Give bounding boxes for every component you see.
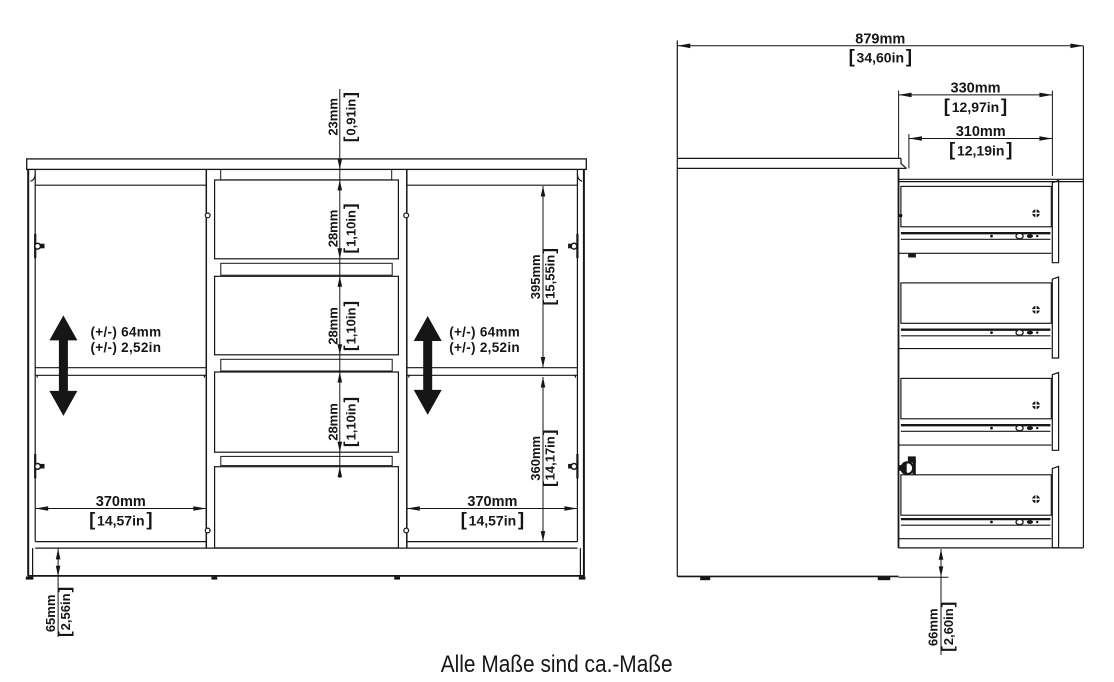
- svg-text:879mm: 879mm: [855, 31, 905, 47]
- svg-text:(+/-) 2,52in: (+/-) 2,52in: [449, 340, 520, 355]
- svg-text:[1,10in]: [1,10in]: [341, 203, 360, 253]
- svg-text:28mm: 28mm: [326, 307, 341, 345]
- svg-text:(+/-) 64mm: (+/-) 64mm: [449, 324, 520, 339]
- svg-text:66mm: 66mm: [925, 609, 940, 647]
- svg-text:[14,57in]: [14,57in]: [89, 508, 152, 529]
- svg-text:[12,19in]: [12,19in]: [949, 138, 1012, 159]
- svg-text:[2,56in]: [2,56in]: [55, 587, 74, 637]
- svg-text:360mm: 360mm: [528, 436, 543, 481]
- svg-text:370mm: 370mm: [467, 494, 517, 510]
- svg-text:(+/-) 2,52in: (+/-) 2,52in: [91, 340, 162, 355]
- svg-text:395mm: 395mm: [528, 254, 543, 299]
- svg-text:Alle Maße sind ca.-Maße: Alle Maße sind ca.-Maße: [441, 649, 673, 677]
- svg-text:(+/-) 64mm: (+/-) 64mm: [91, 324, 162, 339]
- svg-text:[12,97in]: [12,97in]: [944, 95, 1007, 116]
- svg-text:[15,55in]: [15,55in]: [540, 248, 559, 305]
- svg-text:[1,10in]: [1,10in]: [341, 301, 360, 351]
- svg-text:28mm: 28mm: [326, 403, 341, 441]
- svg-text:330mm: 330mm: [951, 80, 1001, 96]
- svg-text:[14,57in]: [14,57in]: [461, 508, 524, 529]
- svg-text:[14,17in]: [14,17in]: [540, 430, 559, 487]
- svg-text:[1,10in]: [1,10in]: [341, 397, 360, 447]
- svg-text:370mm: 370mm: [96, 494, 146, 510]
- svg-text:310mm: 310mm: [956, 124, 1006, 140]
- svg-text:23mm: 23mm: [326, 98, 341, 136]
- svg-text:[2,60in]: [2,60in]: [938, 602, 957, 652]
- svg-text:[0,91in]: [0,91in]: [341, 92, 360, 142]
- svg-text:28mm: 28mm: [326, 210, 341, 248]
- svg-text:[34,60in]: [34,60in]: [849, 46, 912, 67]
- svg-text:65mm: 65mm: [43, 595, 58, 633]
